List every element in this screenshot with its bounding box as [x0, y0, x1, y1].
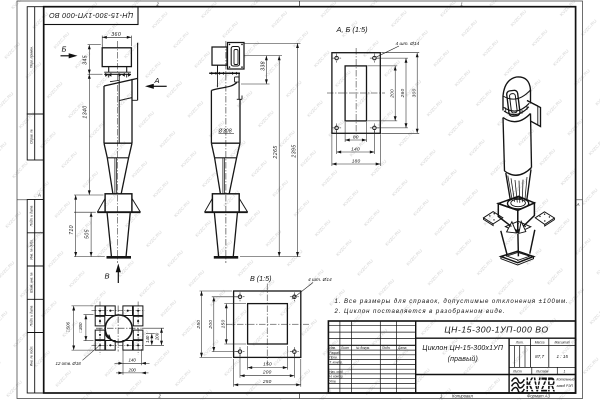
svg-text:Утв.: Утв. [329, 380, 336, 384]
svg-text:345: 345 [83, 55, 89, 65]
svg-text:Лист: Лист [512, 369, 522, 373]
svg-text:В (1:5): В (1:5) [250, 274, 272, 283]
svg-text:завод РЭП: завод РЭП [556, 384, 574, 388]
svg-text:Инв. № дубл.: Инв. № дубл. [29, 239, 33, 259]
svg-text:2395: 2395 [292, 144, 298, 158]
svg-text:1: 1 [461, 1, 463, 6]
svg-text:Изм.: Изм. [329, 346, 336, 350]
svg-text:2265: 2265 [273, 145, 279, 159]
svg-text:1. Все размеры для справок, до: 1. Все размеры для справок, допустимые о… [335, 298, 569, 305]
svg-text:200: 200 [128, 367, 137, 372]
svg-text:200: 200 [208, 320, 214, 330]
svg-text:360: 360 [111, 32, 121, 38]
svg-text:Разраб.: Разраб. [329, 351, 341, 355]
svg-text:140: 140 [351, 147, 360, 153]
svg-text:4 шт. Ø14: 4 шт. Ø14 [308, 277, 332, 283]
svg-text:1: 1 [440, 394, 442, 399]
svg-text:Нач. отд.: Нач. отд. [329, 370, 343, 374]
svg-text:№ докум.: № докум. [356, 346, 370, 350]
svg-text:338: 338 [260, 61, 266, 71]
svg-text:250: 250 [262, 379, 272, 385]
svg-text:Подп. и дата: Подп. и дата [29, 206, 33, 227]
svg-text:Лит.: Лит. [515, 341, 524, 345]
svg-text:Листов: Листов [535, 369, 549, 373]
svg-text:ЦН-15-300-1УП-000 ВО: ЦН-15-300-1УП-000 ВО [444, 325, 548, 335]
svg-text:Копировал: Копировал [452, 394, 473, 399]
svg-text:□506: □506 [65, 321, 70, 332]
svg-text:180: 180 [352, 159, 361, 165]
svg-text:В: В [105, 272, 110, 281]
svg-text:1: 1 [564, 369, 566, 373]
svg-text:Масса: Масса [535, 341, 545, 345]
svg-text:12 отв. Ø18: 12 отв. Ø18 [56, 361, 82, 366]
svg-text:Т. контр.: Т. контр. [329, 360, 343, 364]
svg-text:200: 200 [389, 89, 395, 99]
svg-text:Перв. примен.: Перв. примен. [29, 46, 33, 68]
svg-text:Масштаб: Масштаб [554, 341, 570, 345]
svg-text:А: А [576, 202, 580, 207]
svg-text:Циклон ЦН-15-300х1УП: Циклон ЦН-15-300х1УП [422, 345, 503, 352]
svg-text:Н. контр.: Н. контр. [329, 375, 343, 379]
svg-text:150: 150 [263, 361, 272, 367]
svg-text:150: 150 [221, 320, 227, 329]
svg-text:200: 200 [155, 332, 160, 341]
svg-text:1 : 15: 1 : 15 [556, 354, 568, 359]
svg-text:Инв. № подл.: Инв. № подл. [29, 346, 33, 367]
svg-text:Подп. и дата: Подп. и дата [29, 306, 33, 327]
svg-text:140: 140 [145, 335, 150, 343]
svg-text:87,7: 87,7 [535, 354, 544, 359]
svg-text:80: 80 [353, 135, 359, 141]
svg-text:505: 505 [85, 229, 91, 239]
svg-text:4 шт. Ø14: 4 шт. Ø14 [396, 41, 420, 47]
svg-text:(правый): (правый) [448, 355, 478, 363]
svg-text:Б: Б [62, 45, 67, 54]
svg-text:710: 710 [69, 225, 75, 235]
svg-text:Справ. №: Справ. № [29, 129, 33, 144]
svg-text:А, Б (1:5): А, Б (1:5) [336, 25, 369, 34]
svg-text:ЦН-15-300-1УП-000 ВО: ЦН-15-300-1УП-000 ВО [49, 11, 133, 20]
svg-text:Котельный: Котельный [557, 378, 575, 382]
svg-text:□300: □300 [78, 322, 83, 333]
svg-text:140: 140 [129, 358, 137, 363]
svg-text:А: А [37, 193, 41, 198]
svg-text:Дата: Дата [397, 346, 407, 350]
svg-text:Взам. инв. №: Взам. инв. № [29, 272, 33, 293]
svg-text:Подп.: Подп. [382, 346, 391, 350]
svg-text:Лист: Лист [340, 346, 350, 350]
svg-text:2. Циклон поставляется в разоб: 2. Циклон поставляется в разобранном вид… [334, 308, 506, 315]
svg-text:200: 200 [262, 370, 272, 376]
svg-text:А: А [154, 76, 160, 85]
svg-text:1340: 1340 [83, 105, 89, 118]
svg-text:250: 250 [196, 320, 202, 330]
svg-text:300: 300 [411, 89, 417, 98]
svg-text:260: 260 [400, 89, 406, 99]
svg-text:Пров.: Пров. [329, 356, 338, 360]
